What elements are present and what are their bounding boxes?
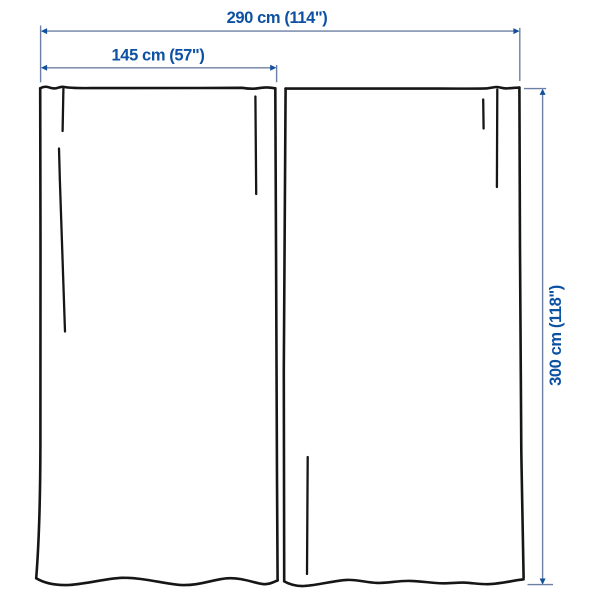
svg-text:290 cm (114"): 290 cm (114"): [227, 9, 328, 27]
svg-text:300 cm (118"): 300 cm (118"): [547, 285, 565, 386]
svg-text:145 cm (57"): 145 cm (57"): [112, 47, 205, 65]
